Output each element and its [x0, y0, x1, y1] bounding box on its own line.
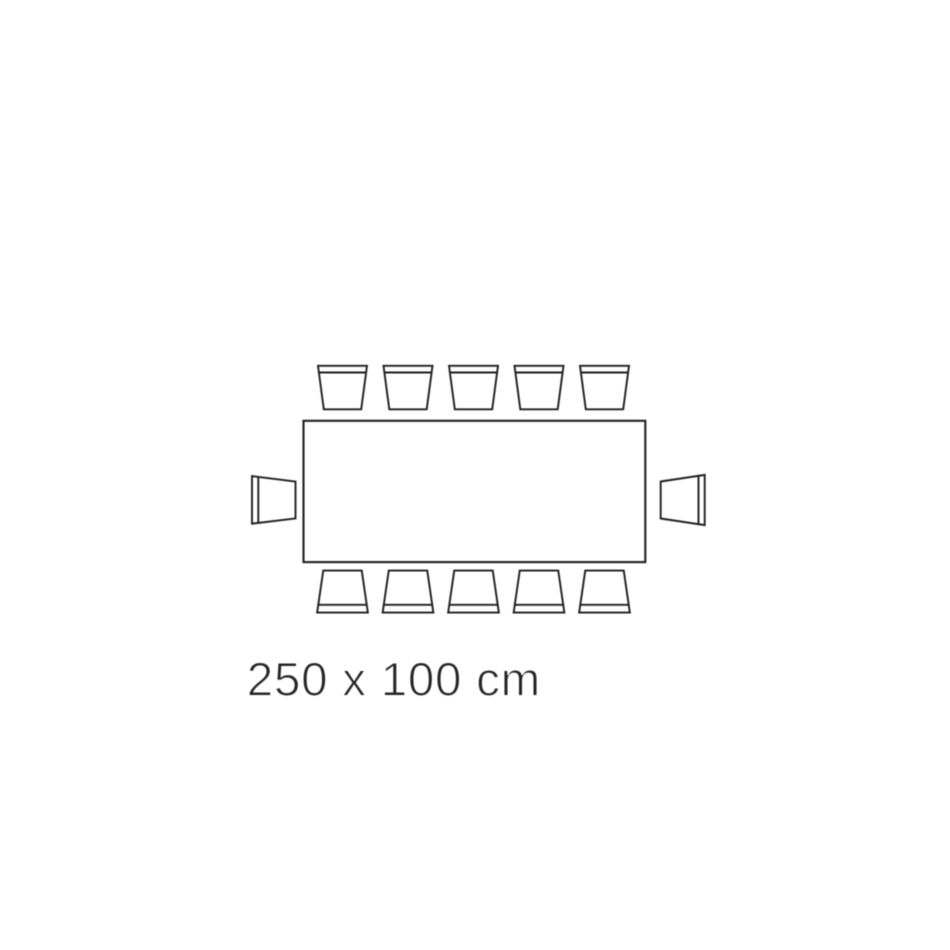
svg-text:250 x 100 cm: 250 x 100 cm — [247, 654, 541, 707]
